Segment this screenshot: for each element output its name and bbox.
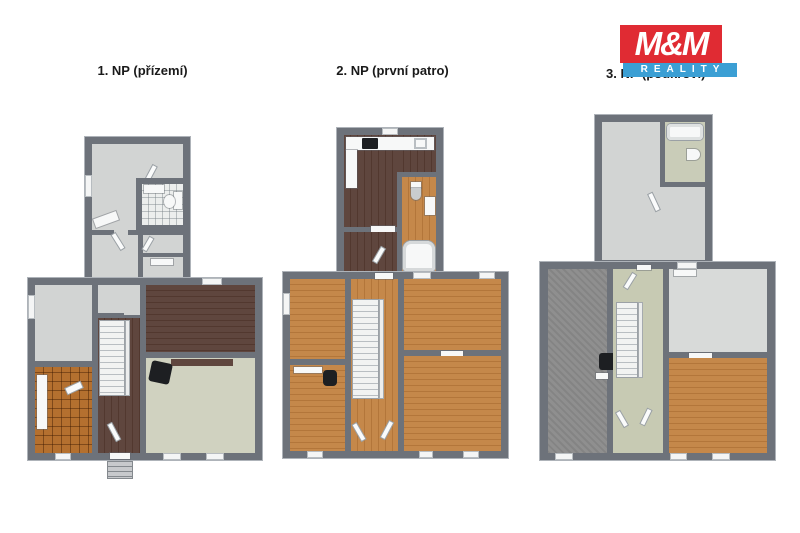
- window: [677, 262, 697, 269]
- stove: [148, 360, 173, 385]
- toilet-bowl: [164, 195, 175, 208]
- floorplan-2np: [283, 127, 508, 458]
- window: [202, 278, 222, 285]
- staircase: [353, 300, 378, 398]
- room-left-top: [290, 279, 345, 359]
- window: [712, 453, 730, 460]
- wall-seg: [660, 182, 705, 187]
- shelf: [637, 265, 651, 270]
- sink: [414, 138, 427, 149]
- rug: [171, 359, 233, 366]
- stair-railing: [126, 321, 129, 395]
- window: [55, 453, 71, 460]
- washbasin: [425, 197, 435, 215]
- shelf: [294, 367, 322, 373]
- shelf: [151, 259, 173, 265]
- staircase: [617, 303, 637, 377]
- shelf: [596, 373, 608, 379]
- staircase: [100, 321, 124, 395]
- window: [307, 451, 323, 458]
- toilet-bowl: [411, 188, 421, 200]
- floorplan-1np: [28, 135, 262, 480]
- room-right-top: [146, 285, 255, 352]
- entry-steps: [108, 462, 132, 478]
- wall-seg: [143, 253, 183, 257]
- window: [85, 175, 92, 197]
- kitchen-counter: [37, 375, 47, 429]
- window: [163, 453, 181, 460]
- floorplan-3np: [540, 113, 775, 460]
- window: [283, 293, 290, 315]
- logo-reality-text: REALITY: [623, 63, 737, 77]
- window: [670, 453, 687, 460]
- entry-door: [110, 453, 130, 459]
- kitchen-counter: [346, 150, 357, 188]
- window: [413, 272, 431, 279]
- room-right-top: [404, 279, 501, 350]
- room-right-bottom: [669, 358, 767, 453]
- window: [463, 451, 479, 458]
- window: [419, 451, 433, 458]
- vestibule: [98, 285, 140, 315]
- window: [206, 453, 224, 460]
- logo-mm-text: M&M: [620, 25, 722, 63]
- toilet-tank: [174, 192, 182, 209]
- cooktop: [362, 138, 378, 149]
- stove: [323, 370, 337, 386]
- toilet-bowl: [687, 149, 700, 160]
- wall-seg: [128, 230, 183, 235]
- window: [28, 295, 35, 319]
- shelf: [144, 185, 164, 193]
- shelf: [674, 270, 696, 276]
- window: [479, 272, 495, 279]
- floorplan-sheet: 1. NP (přízemí) 2. NP (první patro) 3. N…: [0, 0, 800, 533]
- wall-seg: [92, 230, 114, 235]
- floor-label-2: 2. NP (první patro): [310, 63, 475, 78]
- bathtub: [403, 241, 435, 271]
- stair-railing: [380, 300, 383, 398]
- room-right-bottom: [404, 356, 501, 451]
- mm-reality-logo: M&M REALITY: [620, 25, 737, 77]
- window: [382, 128, 398, 135]
- shelf: [375, 273, 393, 279]
- room-left-top: [35, 285, 92, 361]
- floor-label-1: 1. NP (přízemí): [60, 63, 225, 78]
- bathtub: [667, 124, 703, 140]
- stair-railing: [639, 303, 642, 377]
- room-right-top: [669, 269, 767, 352]
- hallway: [344, 232, 397, 272]
- window: [555, 453, 573, 460]
